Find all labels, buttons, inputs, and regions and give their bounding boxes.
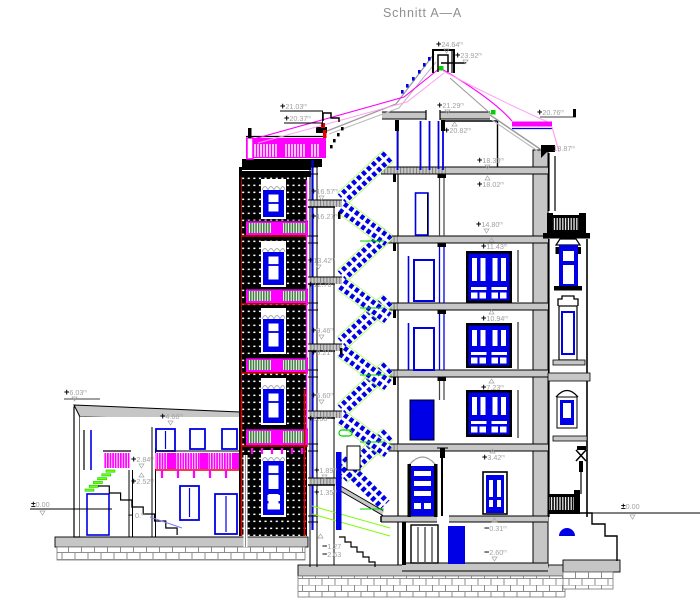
svg-text:+16.27m: +16.27m bbox=[311, 211, 338, 221]
svg-text:+21.03m: +21.03m bbox=[280, 101, 307, 111]
svg-text:+18.30m: +18.30m bbox=[477, 155, 504, 165]
svg-text:+20.37m: +20.37m bbox=[284, 113, 311, 123]
svg-text:+20.82m: +20.82m bbox=[444, 125, 471, 135]
svg-text:+12.76m: +12.76m bbox=[308, 279, 335, 289]
svg-text:+20.76m: +20.76m bbox=[537, 107, 564, 117]
svg-text:+14.80m: +14.80m bbox=[476, 219, 503, 229]
svg-text:+18.02m: +18.02m bbox=[477, 179, 504, 189]
svg-text:Schnitt A—A: Schnitt A—A bbox=[383, 6, 462, 20]
svg-text:+11.43m: +11.43m bbox=[481, 241, 508, 251]
svg-text:−: − bbox=[128, 510, 133, 520]
svg-text:−2.63: −2.63 bbox=[322, 549, 341, 559]
svg-text:+24.64m: +24.64m bbox=[436, 39, 463, 49]
svg-text:+16.57m: +16.57m bbox=[311, 186, 338, 196]
svg-text:+10.94m: +10.94m bbox=[481, 313, 508, 323]
svg-text:+23.92m: +23.92m bbox=[455, 50, 482, 60]
svg-text:±0.00: ±0.00 bbox=[31, 499, 50, 509]
svg-text:±0.00: ±0.00 bbox=[621, 501, 640, 511]
svg-text:+21.29m: +21.29m bbox=[437, 100, 464, 110]
svg-text:+13.42m: +13.42m bbox=[308, 255, 335, 265]
svg-text:+18.87m: +18.87m bbox=[548, 143, 575, 153]
